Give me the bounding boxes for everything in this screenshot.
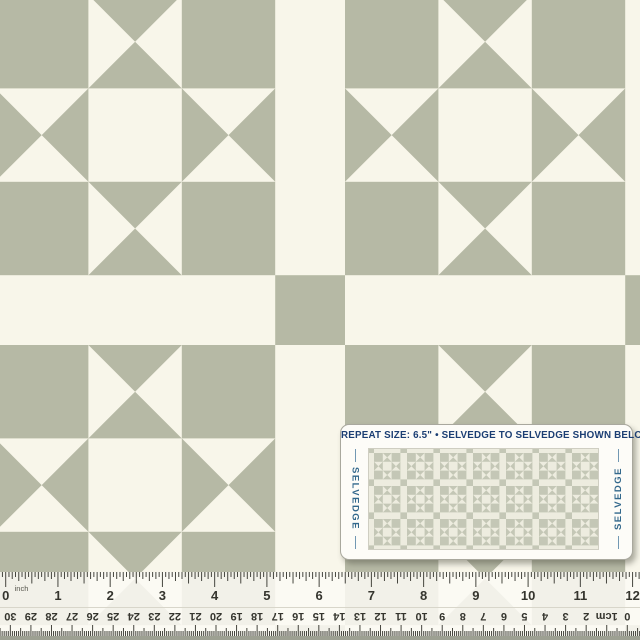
selvedge-rule-top-left — [355, 449, 356, 462]
svg-text:14: 14 — [332, 610, 345, 622]
svg-text:10: 10 — [521, 588, 535, 603]
svg-text:0: 0 — [624, 610, 630, 622]
svg-text:17: 17 — [272, 610, 284, 622]
selvedge-rule-bottom-left — [355, 536, 356, 549]
svg-text:6: 6 — [316, 588, 323, 603]
svg-text:16: 16 — [292, 610, 304, 622]
selvedge-rule-top-right — [618, 449, 619, 462]
svg-text:5: 5 — [263, 588, 270, 603]
svg-text:18: 18 — [251, 610, 263, 622]
selvedge-text-left: SELVEDGE — [350, 467, 361, 530]
selvedge-label-left: SELVEDGE — [344, 445, 366, 553]
svg-text:29: 29 — [25, 610, 37, 622]
svg-text:12: 12 — [374, 610, 386, 622]
selvedge-to-selvedge-preview — [368, 448, 599, 550]
svg-text:26: 26 — [86, 610, 98, 622]
svg-text:10: 10 — [416, 610, 428, 622]
svg-text:7: 7 — [368, 588, 375, 603]
inch-unit-label: inch — [15, 584, 29, 593]
svg-text:27: 27 — [66, 610, 78, 622]
measuring-ruler-overlay: 0123456789101112inch30292827262524232221… — [0, 570, 640, 640]
svg-text:12: 12 — [625, 588, 639, 603]
svg-text:8: 8 — [420, 588, 427, 603]
fabric-product-image: 0123456789101112inch30292827262524232221… — [0, 0, 640, 640]
svg-text:4: 4 — [211, 588, 219, 603]
svg-text:2: 2 — [583, 610, 589, 622]
selvedge-rule-bottom-right — [618, 536, 619, 549]
selvedge-text-right: SELVEDGE — [613, 467, 624, 530]
svg-text:11: 11 — [395, 610, 407, 622]
svg-text:9: 9 — [439, 610, 445, 622]
svg-text:7: 7 — [480, 610, 486, 622]
svg-text:19: 19 — [230, 610, 242, 622]
svg-text:13: 13 — [354, 610, 366, 622]
svg-text:4: 4 — [541, 610, 548, 622]
svg-text:30: 30 — [4, 610, 16, 622]
svg-text:23: 23 — [148, 610, 160, 622]
svg-text:11: 11 — [573, 588, 587, 603]
svg-text:20: 20 — [210, 610, 222, 622]
svg-text:8: 8 — [460, 610, 466, 622]
repeat-size-title: REPEAT SIZE: 6.5" • SELVEDGE TO SELVEDGE… — [341, 430, 632, 441]
svg-text:2: 2 — [107, 588, 114, 603]
selvedge-label-right: SELVEDGE — [607, 445, 629, 553]
repeat-info-card: REPEAT SIZE: 6.5" • SELVEDGE TO SELVEDGE… — [340, 424, 633, 560]
svg-text:22: 22 — [169, 610, 181, 622]
svg-text:5: 5 — [521, 610, 527, 622]
svg-text:25: 25 — [107, 610, 119, 622]
svg-text:15: 15 — [313, 610, 325, 622]
svg-text:0: 0 — [2, 588, 9, 603]
svg-text:1: 1 — [54, 588, 61, 603]
svg-text:9: 9 — [472, 588, 479, 603]
svg-text:3: 3 — [563, 610, 569, 622]
svg-text:3: 3 — [159, 588, 166, 603]
svg-text:28: 28 — [45, 610, 57, 622]
svg-text:6: 6 — [501, 610, 507, 622]
svg-text:21: 21 — [189, 610, 201, 622]
svg-text:24: 24 — [127, 610, 140, 622]
svg-text:1cm: 1cm — [596, 610, 618, 622]
